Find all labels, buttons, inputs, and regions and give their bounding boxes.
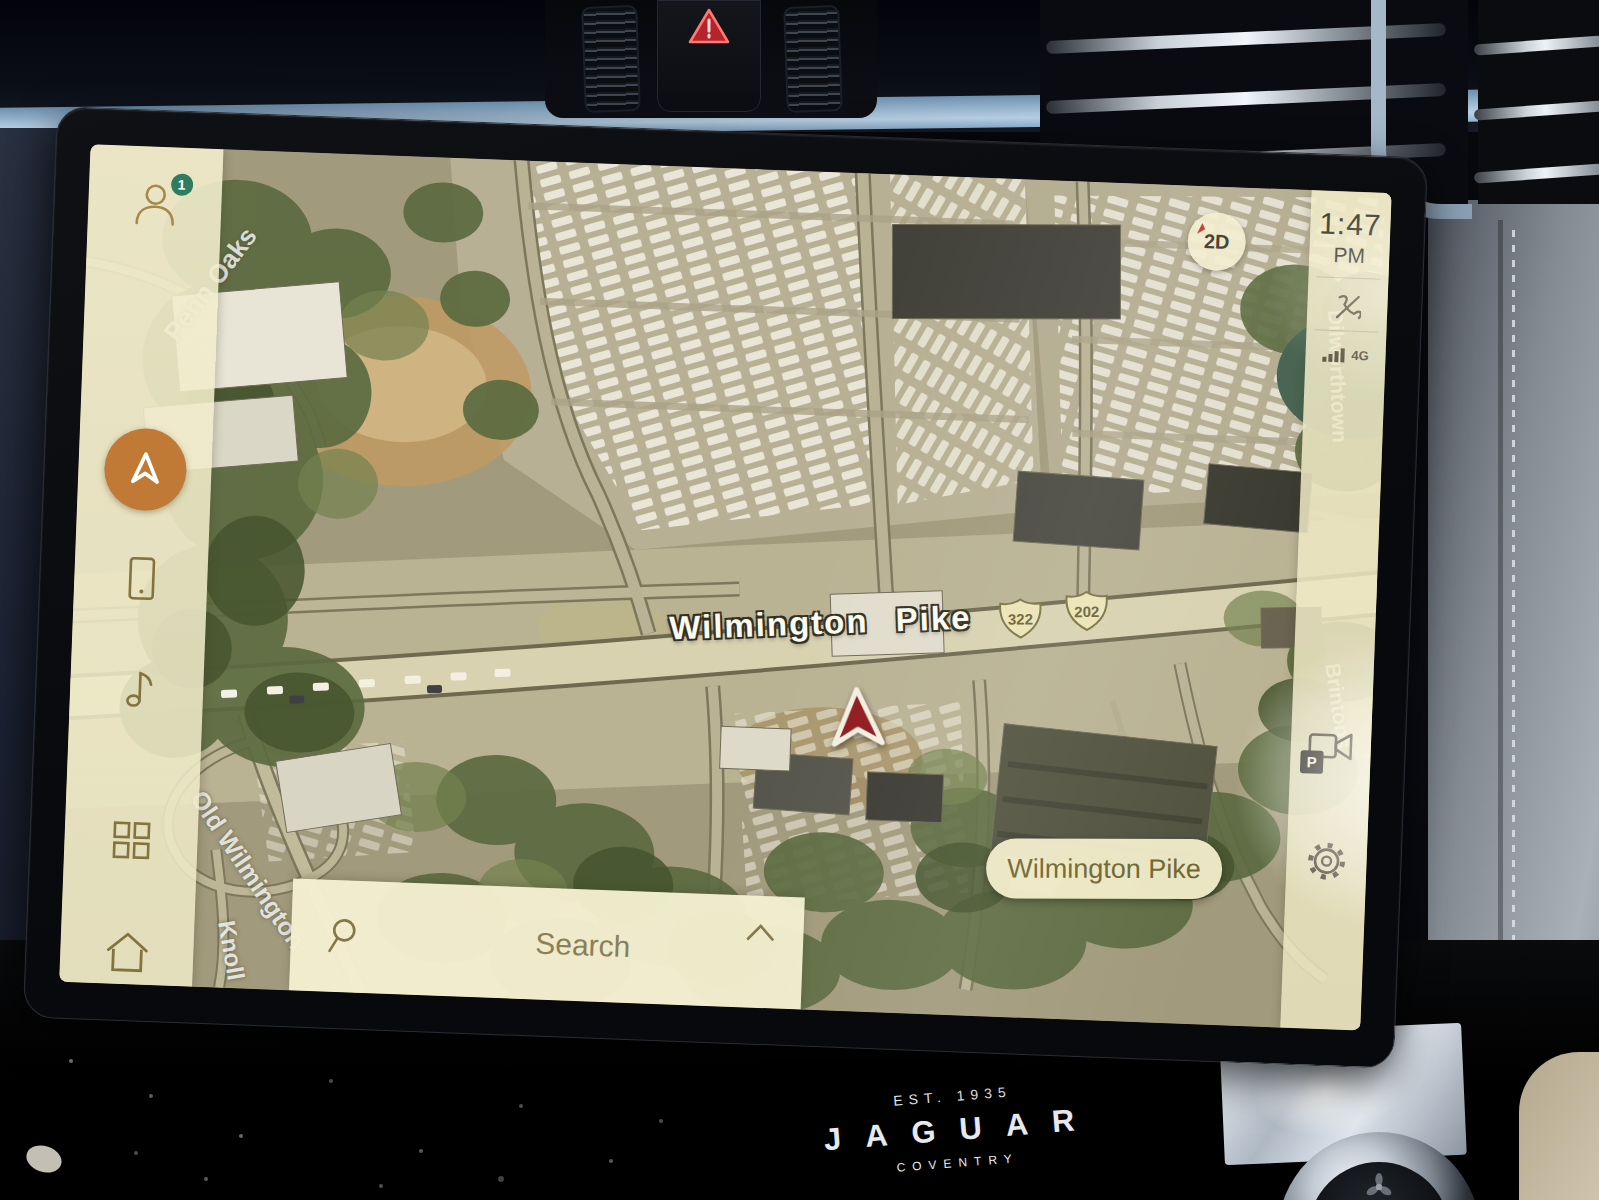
seat-corner-leather — [1519, 1052, 1599, 1200]
hazard-button[interactable] — [657, 0, 761, 112]
dust-speckles — [0, 0, 2, 2]
sidebar-item-home[interactable] — [60, 926, 195, 977]
navigation-active-circle — [102, 427, 187, 512]
gear-icon — [1304, 838, 1350, 884]
sidebar-item-media[interactable] — [70, 662, 205, 711]
phone-status — [1307, 291, 1388, 322]
vehicle-position-marker — [826, 683, 888, 757]
sidebar-item-phone[interactable] — [73, 552, 208, 607]
phone-icon — [121, 554, 161, 605]
divider — [1314, 329, 1378, 332]
vent-slat — [1474, 100, 1599, 120]
navigation-display: Penn Oaks Old Wilmington Knoll Dilwortht… — [59, 144, 1392, 1030]
infotainment-screen: Penn Oaks Old Wilmington Knoll Dilwortht… — [23, 106, 1428, 1069]
nav-arrow-icon — [122, 447, 168, 493]
hazard-triangle-icon — [686, 5, 732, 47]
notification-badge: 1 — [170, 173, 193, 196]
svg-text:202: 202 — [1074, 603, 1099, 620]
network-status: 4G — [1305, 346, 1386, 364]
parking-badge: P — [1300, 750, 1324, 774]
sidebar-item-navigation[interactable] — [77, 426, 213, 513]
network-type: 4G — [1351, 348, 1369, 364]
center-vent-left — [581, 5, 641, 113]
center-vent-right — [783, 5, 843, 113]
clock: 1:47 PM — [1309, 206, 1391, 269]
search-bar[interactable] — [289, 878, 805, 1009]
far-right-air-vent — [1478, 0, 1599, 204]
compass-needle-icon — [1195, 222, 1210, 237]
route-shield-202: 202 — [1063, 590, 1110, 633]
divider — [1316, 276, 1380, 279]
settings-button[interactable] — [1286, 838, 1368, 885]
time-meridiem: PM — [1309, 242, 1390, 269]
sidebar-item-profile[interactable]: 1 — [87, 178, 222, 233]
search-icon — [324, 916, 363, 957]
vent-slat — [1474, 35, 1599, 55]
time-value: 1:47 — [1310, 206, 1391, 243]
vent-slat — [1474, 163, 1599, 183]
search-input[interactable] — [362, 919, 803, 971]
apps-grid-icon — [108, 817, 154, 863]
knob-center — [1308, 1162, 1450, 1200]
center-vent-panel — [545, 0, 877, 118]
route-shield-322: 322 — [997, 597, 1044, 640]
music-note-icon — [118, 664, 156, 709]
car-dashboard-photo: { "status": { "time": "1:47", "meridiem"… — [0, 0, 1599, 1200]
current-street-pill: Wilmington Pike — [986, 839, 1222, 900]
camera-button[interactable]: P — [1290, 728, 1371, 767]
fan-icon — [1364, 1172, 1394, 1200]
current-street-text: Wilmington Pike — [1007, 853, 1201, 885]
svg-text:322: 322 — [1008, 610, 1033, 627]
phone-disconnected-icon — [1333, 292, 1362, 321]
sidebar-item-apps[interactable] — [64, 816, 199, 865]
chevron-up-icon[interactable] — [743, 921, 778, 944]
signal-bars-icon — [1322, 348, 1345, 363]
home-icon — [102, 927, 152, 975]
